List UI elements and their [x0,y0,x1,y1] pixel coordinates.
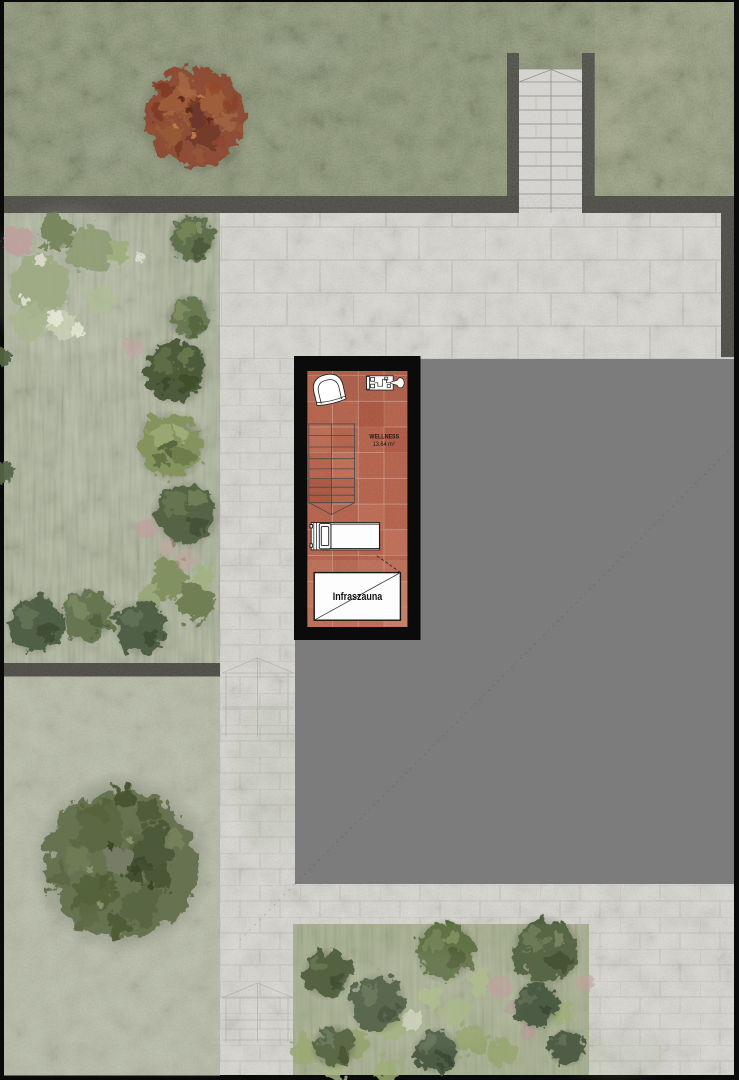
svg-text:13.64 m²: 13.64 m² [373,442,395,448]
svg-text:WELLNESS: WELLNESS [369,434,399,441]
svg-text:Infraszauna: Infraszauna [333,591,383,603]
